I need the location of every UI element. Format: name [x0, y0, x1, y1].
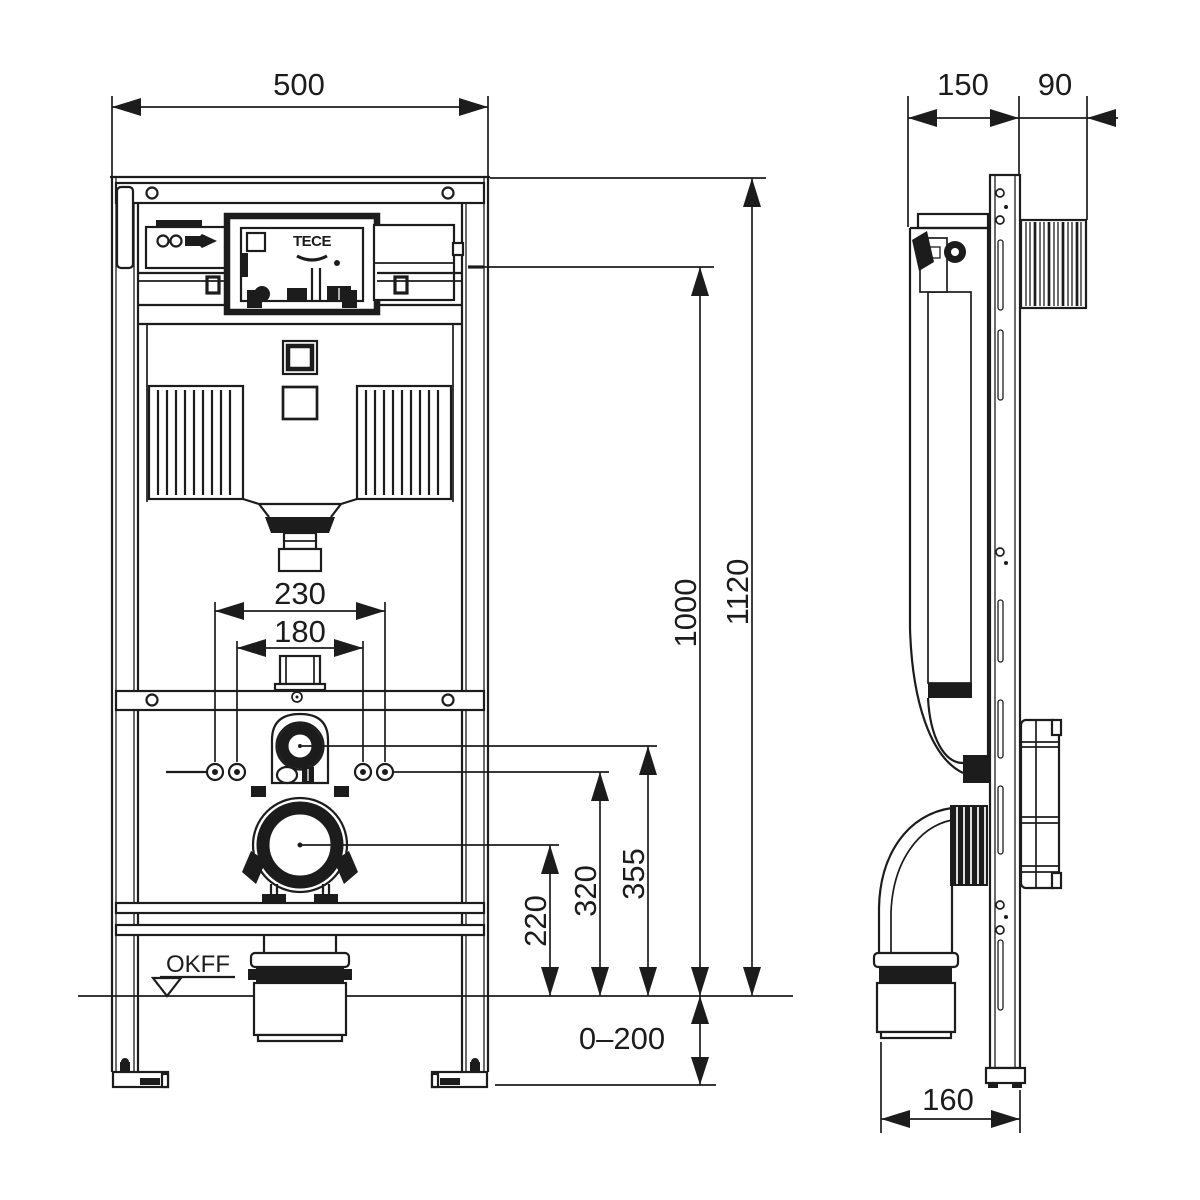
vent-panel-right: [357, 386, 451, 499]
foot-right: [432, 1058, 487, 1087]
brand-logo: TECE: [293, 233, 332, 250]
dim-label-outlet-height: 220: [518, 895, 553, 947]
waste-socket: [248, 935, 352, 1041]
dim-flush-connection-height: 355: [616, 746, 657, 996]
dim-label-actuator-depth: 90: [1038, 67, 1072, 102]
dim-label-frame-depth: 150: [937, 67, 989, 102]
dim-label-adjustment: 0–200: [579, 1021, 665, 1056]
screw-hole-icon: [147, 188, 158, 199]
flush-bend-spigot: [275, 656, 325, 690]
vent-panel-left: [149, 386, 243, 499]
dim-upper-edge-height: 1000: [668, 267, 709, 996]
actuator-protection-block: [1021, 220, 1086, 308]
dim-label-bolt-outer: 230: [274, 576, 326, 611]
dim-label-total-height: 1120: [720, 559, 755, 626]
insulation-disc: [1021, 720, 1061, 888]
floor-level-label: OKFF: [166, 951, 230, 978]
foot-left: [113, 1058, 168, 1087]
screw-hole-icon: [443, 695, 454, 706]
dim-width: 500: [112, 67, 488, 177]
waste-elbow: [874, 805, 988, 1038]
okff-marker: OKFF: [153, 951, 235, 996]
dim-label-upper-edge: 1000: [668, 579, 703, 648]
side-foot: [986, 1068, 1025, 1088]
flush-pipe-funnel: [243, 499, 357, 571]
dim-label-width: 500: [273, 67, 325, 102]
lower-crossbars: [116, 903, 484, 935]
inspection-opening: [283, 387, 317, 419]
side-cistern: [910, 214, 990, 783]
dim-total-height: 1120: [720, 178, 761, 996]
dim-outlet-height: 220: [518, 845, 559, 996]
outlet-grommet: [950, 805, 988, 886]
dim-foot-adjustment: 0–200: [579, 996, 709, 1085]
flush-connection: [272, 714, 328, 783]
mid-crossbar: [116, 691, 484, 710]
dim-label-bolt-height: 320: [568, 865, 603, 917]
floor-level-marker-icon: [153, 978, 181, 996]
flush-mechanism: TECE: [138, 216, 463, 312]
side-view: [874, 175, 1086, 1088]
screw-hole-icon: [443, 188, 454, 199]
dim-bolt-height: 320: [568, 772, 609, 996]
dim-label-outlet-distance: 160: [922, 1082, 974, 1117]
dim-label-flush-height: 355: [616, 848, 651, 900]
side-rail: [990, 175, 1020, 1068]
dim-label-bolt-inner: 180: [274, 614, 326, 649]
wall-bracket-tab: [117, 187, 133, 268]
technical-drawing-page: TECE: [0, 0, 1200, 1200]
screw-hole-icon: [147, 695, 158, 706]
wc-frame-drawing: TECE: [0, 0, 1200, 1200]
